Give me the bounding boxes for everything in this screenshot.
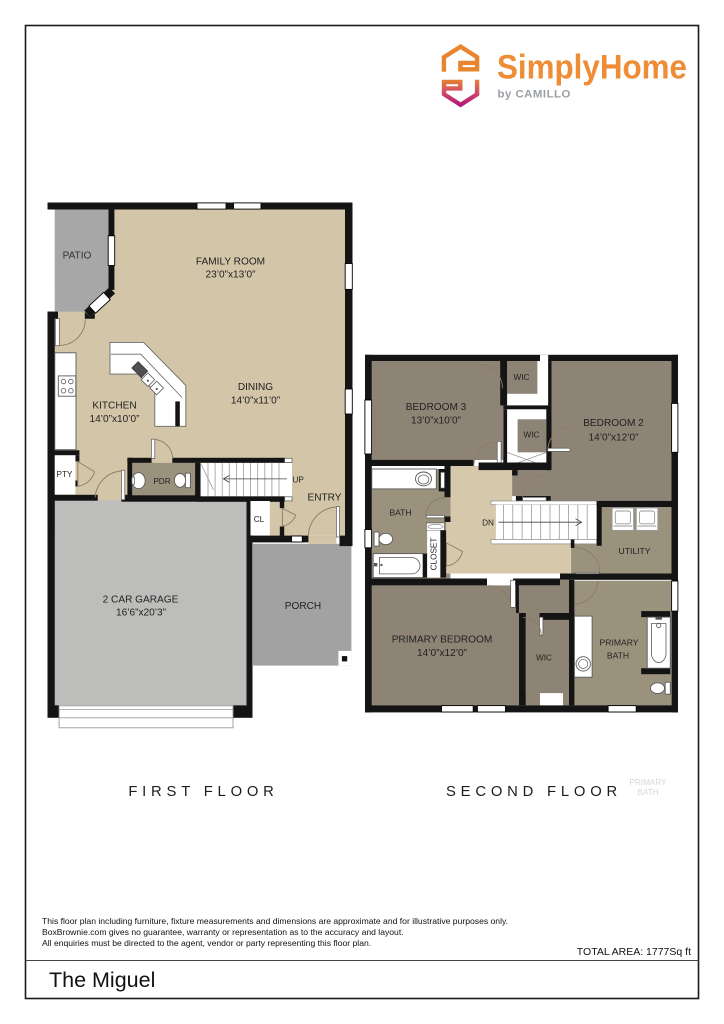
svg-text:2 CAR GARAGE: 2 CAR GARAGE xyxy=(103,595,179,606)
svg-text:PATIO: PATIO xyxy=(63,250,92,261)
svg-text:by CAMILLO: by CAMILLO xyxy=(498,89,571,101)
svg-text:PRIMARY BEDROOM: PRIMARY BEDROOM xyxy=(392,635,493,646)
svg-text:CL: CL xyxy=(254,515,265,524)
svg-text:BEDROOM 3: BEDROOM 3 xyxy=(406,402,467,413)
svg-text:DINING: DINING xyxy=(238,382,273,393)
svg-text:UTILITY: UTILITY xyxy=(619,546,651,556)
svg-text:PTY: PTY xyxy=(57,470,73,479)
svg-text:BATH: BATH xyxy=(389,508,411,518)
svg-text:BEDROOM 2: BEDROOM 2 xyxy=(583,418,644,429)
svg-text:SimplyHome: SimplyHome xyxy=(497,49,687,87)
svg-text:All enquiries must be directed: All enquiries must be directed to the ag… xyxy=(42,938,371,948)
svg-text:PORCH: PORCH xyxy=(285,601,321,612)
svg-text:BATH: BATH xyxy=(637,788,658,797)
svg-text:FIRST FLOOR: FIRST FLOOR xyxy=(128,784,278,800)
svg-text:14’0”x10’0”: 14’0”x10’0” xyxy=(90,414,140,425)
svg-text:FAMILY ROOM: FAMILY ROOM xyxy=(196,257,265,268)
svg-text:BATH: BATH xyxy=(607,650,629,660)
svg-text:WIC: WIC xyxy=(514,373,530,382)
svg-text:WIC: WIC xyxy=(524,431,540,440)
svg-text:14’0”x12’0”: 14’0”x12’0” xyxy=(417,648,467,659)
svg-text:BoxBrownie.com gives no guaran: BoxBrownie.com gives no guarantee, warra… xyxy=(42,927,404,937)
svg-text:WIC: WIC xyxy=(536,654,552,663)
svg-text:This floor plan including furn: This floor plan including furniture, fix… xyxy=(42,916,508,926)
svg-text:CLOSET: CLOSET xyxy=(430,538,439,571)
svg-text:KITCHEN: KITCHEN xyxy=(92,401,136,412)
svg-text:16’6”x20’3”: 16’6”x20’3” xyxy=(116,608,166,619)
svg-text:The Miguel: The Miguel xyxy=(49,968,155,992)
svg-text:PRIMARY: PRIMARY xyxy=(600,637,639,647)
svg-text:UP: UP xyxy=(293,476,305,485)
svg-text:DN: DN xyxy=(482,519,494,528)
svg-text:14’0”x12’0”: 14’0”x12’0” xyxy=(589,433,639,444)
svg-text:23’0”x13’0”: 23’0”x13’0” xyxy=(206,270,256,281)
svg-text:PDR: PDR xyxy=(153,477,170,486)
svg-text:14’0”x11’0”: 14’0”x11’0” xyxy=(231,396,280,407)
svg-text:13’0”x10’0”: 13’0”x10’0” xyxy=(411,416,461,427)
svg-text:PRIMARY: PRIMARY xyxy=(629,778,667,787)
svg-text:SECOND FLOOR: SECOND FLOOR xyxy=(446,784,622,800)
svg-text:ENTRY: ENTRY xyxy=(307,493,341,504)
svg-text:TOTAL AREA: 1777Sq ft: TOTAL AREA: 1777Sq ft xyxy=(577,946,691,958)
